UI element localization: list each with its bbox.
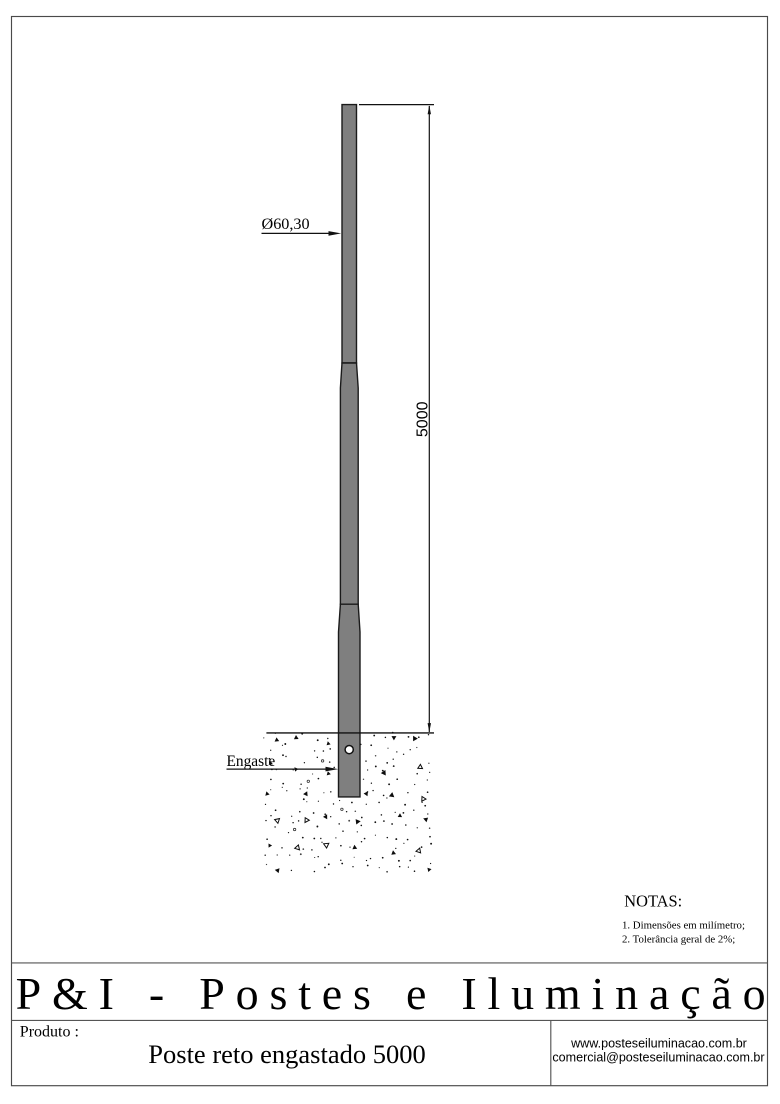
svg-text:2. Tolerância geral de 2%;: 2. Tolerância geral de 2%; (622, 933, 735, 945)
svg-text:Produto :: Produto : (20, 1023, 79, 1040)
svg-text:Ø60,30: Ø60,30 (262, 215, 310, 233)
svg-text:comercial@posteseiluminacao.co: comercial@posteseiluminacao.com.br (552, 1051, 764, 1065)
svg-text:www.posteseiluminacao.com.br: www.posteseiluminacao.com.br (570, 1037, 747, 1051)
svg-text:5000: 5000 (415, 401, 432, 437)
svg-text:1. Dimensões em milímetro;: 1. Dimensões em milímetro; (622, 919, 745, 931)
svg-text:NOTAS:: NOTAS: (624, 891, 682, 910)
svg-text:Engaste: Engaste (227, 753, 276, 770)
svg-text:P&I - Postes e Iluminação: P&I - Postes e Iluminação (16, 968, 777, 1019)
svg-text:Poste reto engastado 5000: Poste reto engastado 5000 (148, 1039, 425, 1069)
